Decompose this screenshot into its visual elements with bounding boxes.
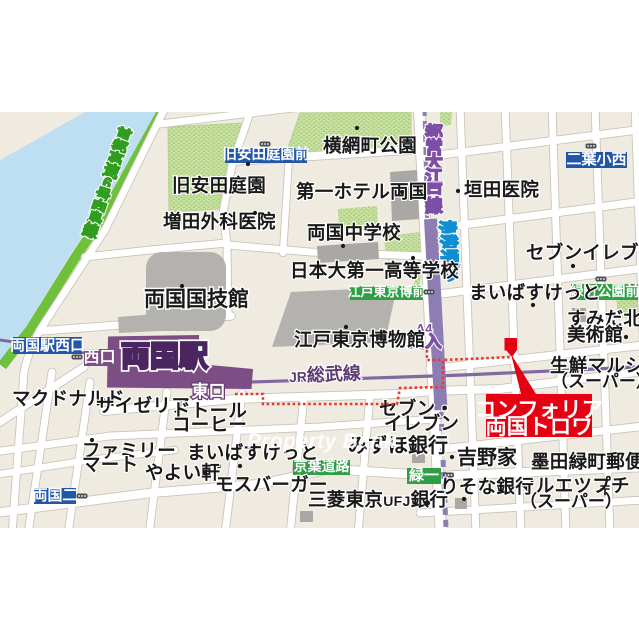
svg-text:江戸東京博前: 江戸東京博前 [347, 284, 425, 299]
svg-text:江戸東京博物館: 江戸東京博物館 [294, 329, 426, 350]
svg-text:吉野家: 吉野家 [457, 445, 518, 469]
svg-text:旧安田庭園: 旧安田庭園 [172, 175, 266, 196]
svg-text:線: 線 [425, 196, 443, 216]
svg-text:（スーパー）: （スーパー） [551, 371, 639, 391]
svg-text:コーヒー: コーヒー [172, 414, 247, 435]
svg-text:日本大第一高等学校: 日本大第一高等学校 [290, 260, 459, 281]
svg-text:第一ホテル両国: 第一ホテル両国 [296, 181, 428, 202]
svg-text:旧安田庭園前: 旧安田庭園前 [223, 145, 310, 163]
svg-text:両国トロワ: 両国トロワ [485, 415, 593, 439]
svg-text:両国国技館: 両国国技館 [144, 287, 249, 311]
svg-text:両国駅: 両国駅 [121, 341, 208, 373]
svg-text:美術館: 美術館 [567, 324, 623, 345]
svg-text:やよい軒: やよい軒 [145, 462, 220, 483]
svg-text:垣田医院: 垣田医院 [464, 179, 539, 200]
svg-text:二葉小西: 二葉小西 [566, 150, 626, 168]
svg-text:マート: マート [82, 454, 138, 475]
svg-text:墨田緑町郵便局: 墨田緑町郵便局 [531, 451, 639, 472]
svg-text:両国中学校: 両国中学校 [307, 222, 401, 243]
svg-text:両国駅西口: 両国駅西口 [10, 337, 85, 354]
svg-text:緑一: 緑一 [409, 466, 439, 484]
svg-text:セブンイレブン: セブンイレブン [526, 242, 639, 263]
svg-text:りそな銀行: りそな銀行 [440, 476, 534, 497]
svg-text:横網町公園: 横網町公園 [323, 135, 417, 156]
svg-text:西口: 西口 [83, 348, 115, 366]
svg-text:〒: 〒 [598, 483, 611, 498]
svg-text:三菱東京UFJ銀行: 三菱東京UFJ銀行 [308, 489, 448, 510]
svg-text:東口: 東口 [192, 381, 226, 401]
svg-text:増田外科医院: 増田外科医院 [163, 211, 276, 232]
svg-text:両国二: 両国二 [32, 487, 77, 504]
svg-text:Property Bank: Property Bank [247, 430, 397, 453]
svg-text:まいばすけっと: まいばすけっと [469, 282, 601, 303]
